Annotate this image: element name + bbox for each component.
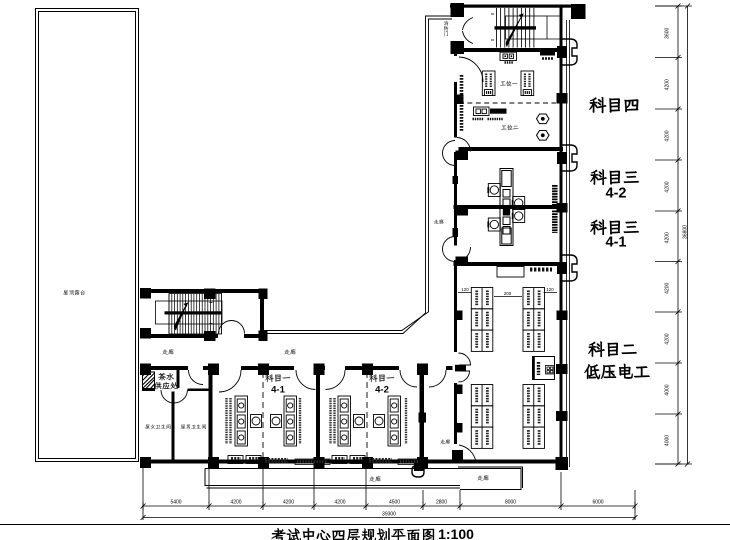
svg-text:4000: 4000 [665,435,671,446]
svg-text:4-2: 4-2 [606,186,627,202]
svg-text:120: 120 [461,287,469,292]
svg-text:4-1: 4-1 [606,235,627,251]
svg-text:4-1: 4-1 [271,385,285,396]
svg-text:4200: 4200 [283,500,294,506]
svg-text:4200: 4200 [334,500,345,506]
svg-text:4000: 4000 [665,384,671,395]
svg-text:4200: 4200 [665,282,671,293]
svg-text:200: 200 [504,291,512,296]
svg-text:4200: 4200 [665,130,671,141]
svg-text:4500: 4500 [389,500,400,506]
svg-text:36800: 36800 [683,225,689,239]
svg-text:4200: 4200 [665,181,671,192]
svg-text:5400: 5400 [170,500,181,506]
svg-text:3600: 3600 [665,27,671,38]
svg-text:4200: 4200 [665,79,671,90]
svg-text:6000: 6000 [592,500,603,506]
svg-text:1:100: 1:100 [438,526,474,540]
svg-text:4200: 4200 [665,333,671,344]
svg-text:8000: 8000 [505,500,516,506]
svg-text:2800: 2800 [436,500,447,506]
svg-text:4200: 4200 [665,232,671,243]
svg-text:39300: 39300 [382,512,396,518]
svg-text:120: 120 [546,287,554,292]
svg-text:4-2: 4-2 [375,385,389,396]
svg-text:4200: 4200 [230,500,241,506]
